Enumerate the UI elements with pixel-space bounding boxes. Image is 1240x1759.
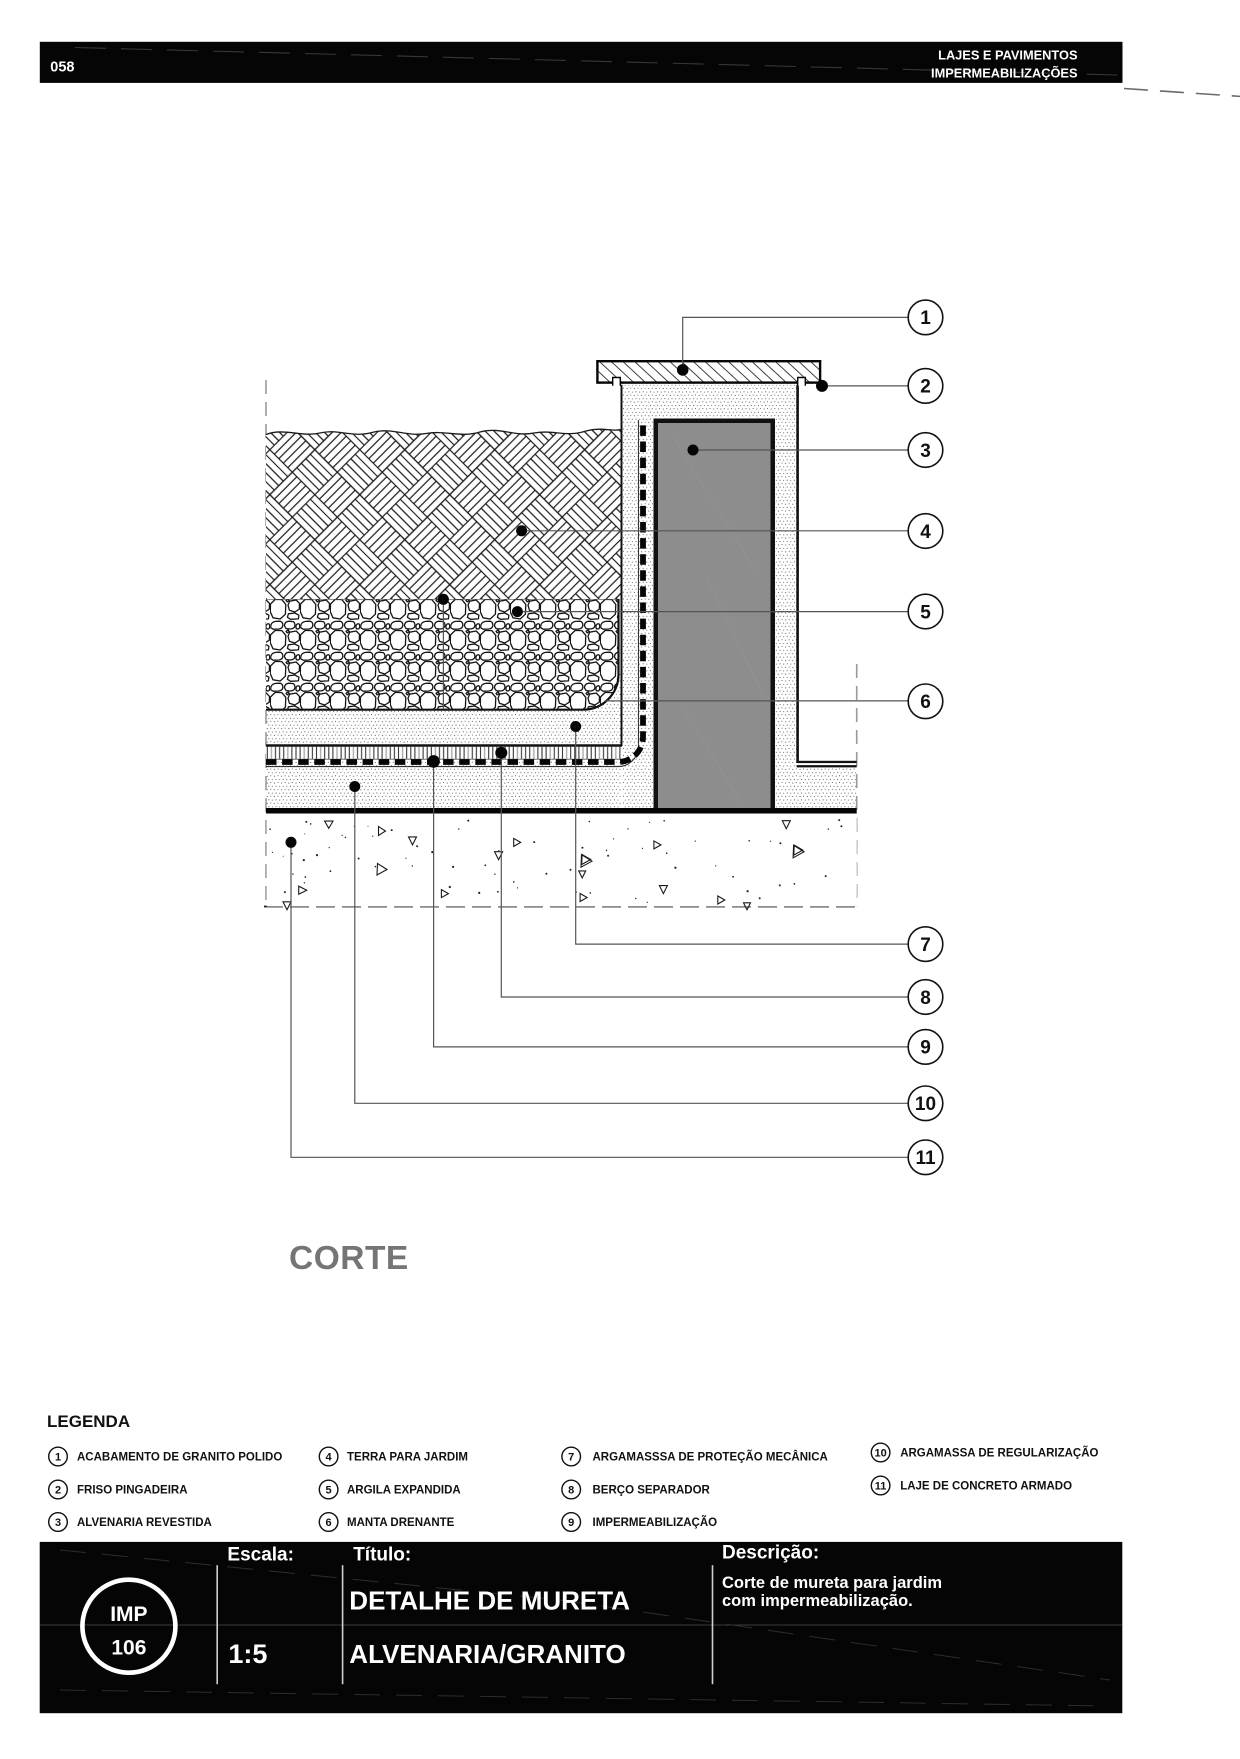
svg-text:Descrição:: Descrição: — [722, 1542, 819, 1563]
svg-text:ARGAMASSA DE REGULARIZAÇÃO: ARGAMASSA DE REGULARIZAÇÃO — [900, 1447, 1098, 1460]
svg-text:8: 8 — [920, 988, 931, 1009]
svg-text:IMPERMEABILIZAÇÃO: IMPERMEABILIZAÇÃO — [593, 1516, 718, 1529]
svg-text:LAJE DE CONCRETO ARMADO: LAJE DE CONCRETO ARMADO — [900, 1481, 1072, 1493]
svg-text:FRISO PINGADEIRA: FRISO PINGADEIRA — [77, 1485, 188, 1497]
svg-text:1: 1 — [55, 1451, 61, 1463]
svg-text:MANTA DRENANTE: MANTA DRENANTE — [347, 1517, 455, 1529]
svg-text:TERRA PARA JARDIM: TERRA PARA JARDIM — [347, 1452, 468, 1464]
svg-text:9: 9 — [920, 1038, 931, 1059]
svg-text:4: 4 — [920, 522, 931, 543]
svg-text:10: 10 — [915, 1094, 936, 1115]
svg-text:1: 1 — [920, 308, 931, 329]
svg-text:058: 058 — [50, 59, 74, 75]
svg-text:ARGAMASSSA DE PROTEÇÃO MECÂNIC: ARGAMASSSA DE PROTEÇÃO MECÂNICA — [593, 1451, 828, 1464]
svg-text:1:5: 1:5 — [228, 1639, 267, 1669]
svg-text:ALVENARIA REVESTIDA: ALVENARIA REVESTIDA — [77, 1517, 212, 1529]
svg-text:com impermeabilização.: com impermeabilização. — [722, 1592, 913, 1610]
svg-text:CORTE: CORTE — [289, 1240, 409, 1277]
svg-text:5: 5 — [920, 602, 931, 623]
svg-text:Corte de mureta para jardim: Corte de mureta para jardim — [722, 1574, 942, 1592]
svg-text:BERÇO SEPARADOR: BERÇO SEPARADOR — [593, 1485, 711, 1497]
svg-text:DETALHE DE MURETA: DETALHE DE MURETA — [349, 1586, 630, 1616]
svg-text:IMPERMEABILIZAÇÕES: IMPERMEABILIZAÇÕES — [931, 66, 1078, 81]
svg-text:ARGILA EXPANDIDA: ARGILA EXPANDIDA — [347, 1485, 461, 1497]
svg-text:3: 3 — [55, 1517, 61, 1529]
svg-text:3: 3 — [920, 441, 931, 462]
svg-text:ALVENARIA/GRANITO: ALVENARIA/GRANITO — [349, 1639, 625, 1669]
svg-text:IMP: IMP — [110, 1603, 147, 1626]
svg-text:5: 5 — [326, 1484, 332, 1496]
svg-text:6: 6 — [326, 1517, 332, 1529]
svg-text:7: 7 — [568, 1451, 574, 1463]
svg-text:8: 8 — [568, 1484, 574, 1496]
svg-text:LAJES E PAVIMENTOS: LAJES E PAVIMENTOS — [938, 48, 1078, 63]
svg-text:6: 6 — [920, 692, 931, 713]
svg-text:Escala:: Escala: — [227, 1544, 294, 1565]
svg-text:11: 11 — [915, 1148, 936, 1169]
svg-text:2: 2 — [55, 1484, 61, 1496]
svg-text:2: 2 — [920, 377, 931, 398]
svg-text:Título:: Título: — [353, 1544, 411, 1565]
svg-text:LEGENDA: LEGENDA — [47, 1412, 130, 1431]
svg-text:7: 7 — [920, 935, 931, 956]
svg-text:10: 10 — [874, 1447, 886, 1459]
svg-text:4: 4 — [326, 1451, 333, 1463]
svg-text:9: 9 — [568, 1517, 574, 1529]
svg-text:11: 11 — [875, 1480, 887, 1492]
svg-text:106: 106 — [111, 1637, 146, 1660]
svg-text:ACABAMENTO DE GRANITO POLIDO: ACABAMENTO DE GRANITO POLIDO — [77, 1452, 282, 1464]
